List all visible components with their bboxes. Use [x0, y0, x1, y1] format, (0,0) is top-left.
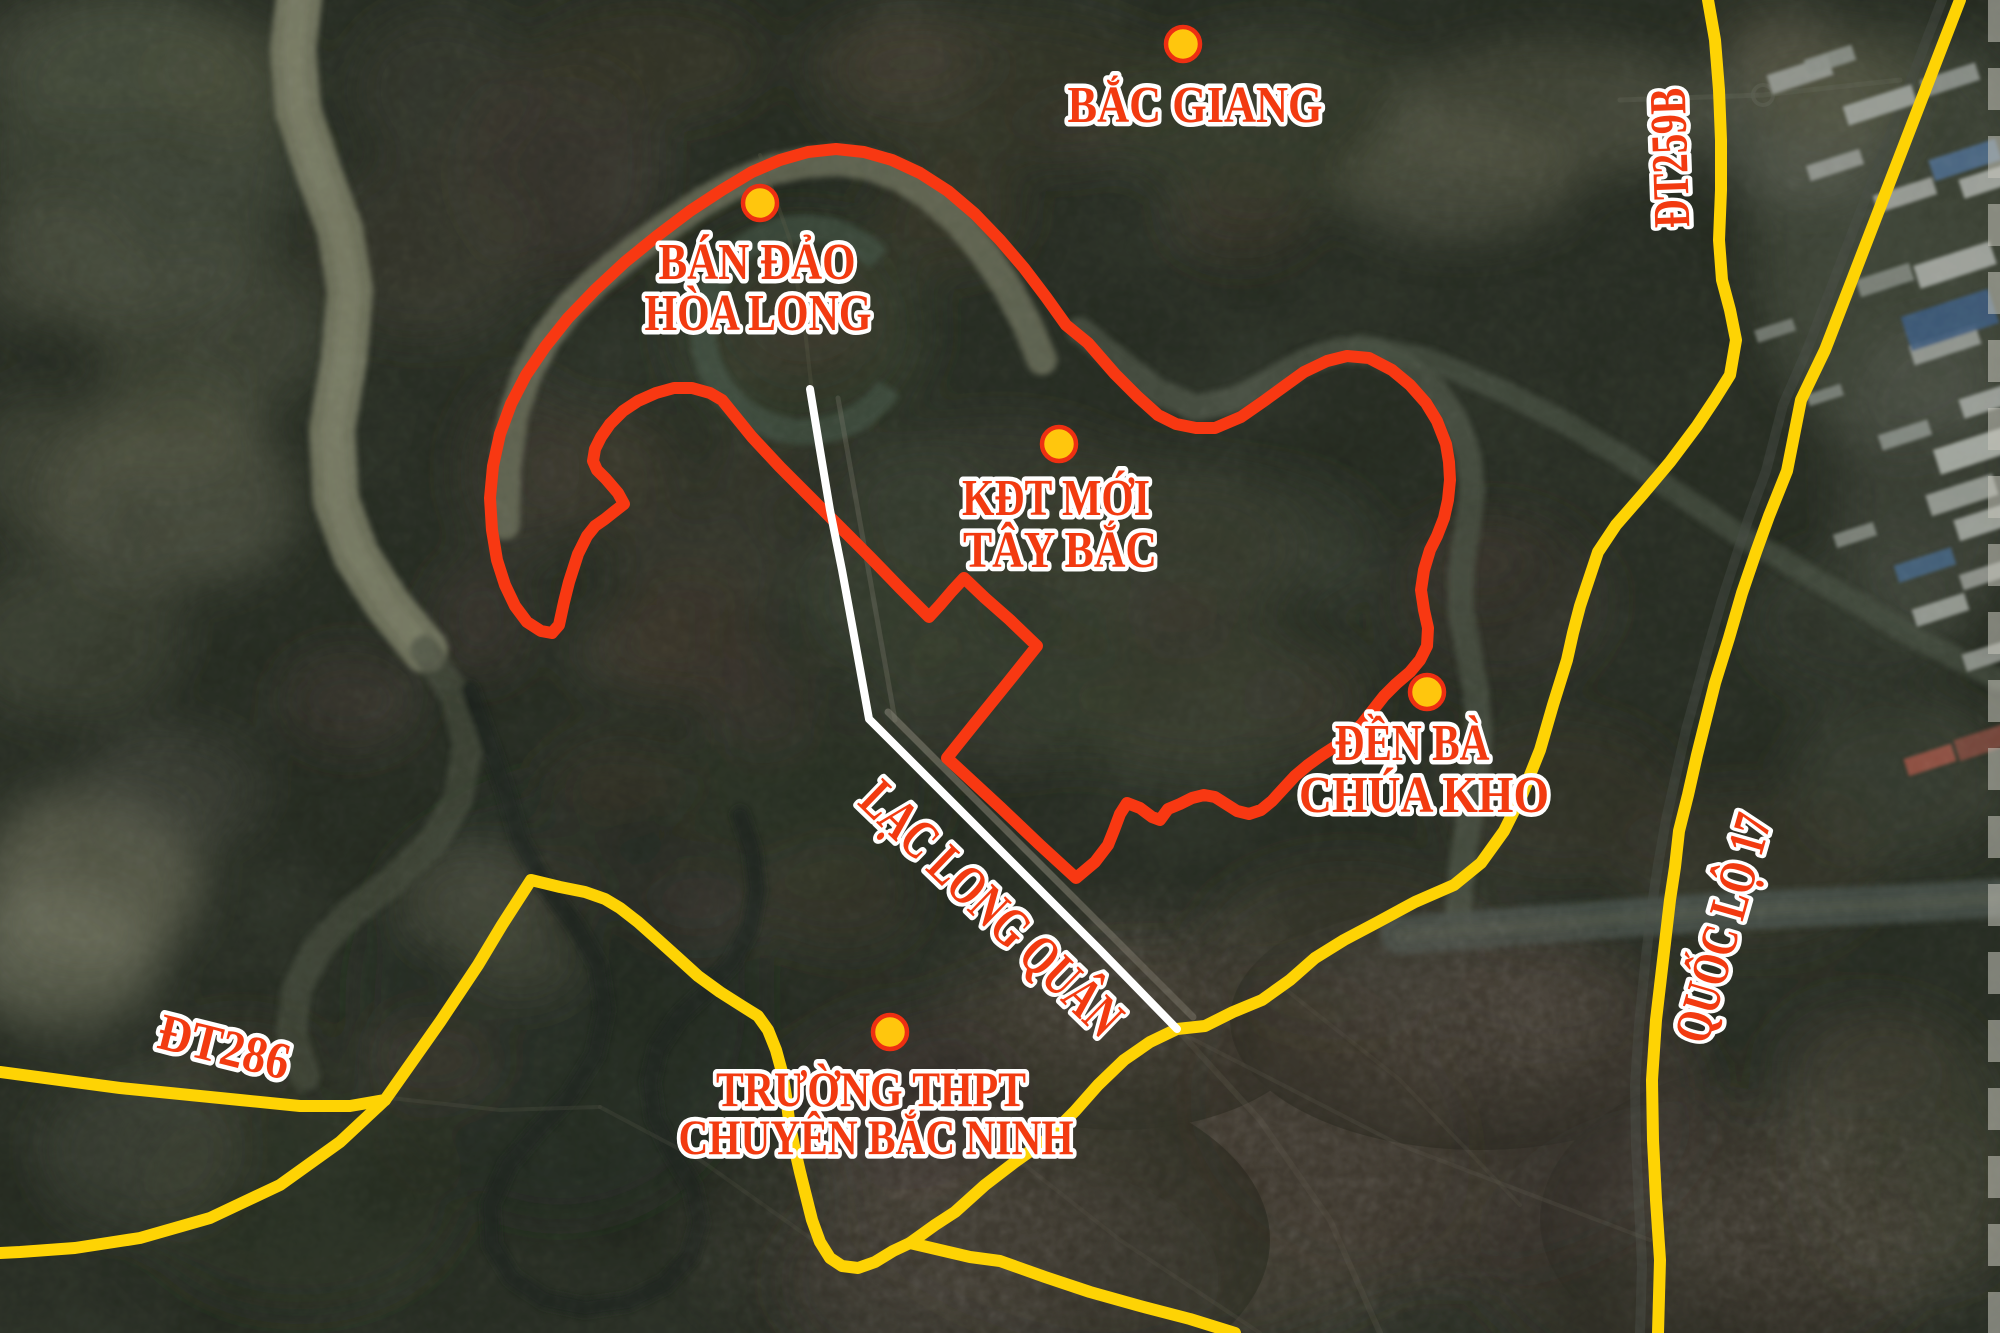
svg-text:CHÚA KHO: CHÚA KHO [1299, 766, 1549, 824]
svg-text:HÒA LONG: HÒA LONG [645, 284, 872, 342]
svg-text:CHUYÊN BẮC NINH: CHUYÊN BẮC NINH [679, 1108, 1074, 1165]
svg-text:BÁN ĐẢO: BÁN ĐẢO [659, 233, 856, 291]
svg-text:KĐT MỚI: KĐT MỚI [962, 469, 1150, 527]
svg-text:ĐỀN BÀ: ĐỀN BÀ [1335, 712, 1490, 772]
svg-text:TÂY BẮC: TÂY BẮC [963, 519, 1157, 579]
svg-text:BẮC GIANG: BẮC GIANG [1068, 74, 1323, 134]
svg-text:ĐT259B: ĐT259B [1640, 87, 1702, 229]
